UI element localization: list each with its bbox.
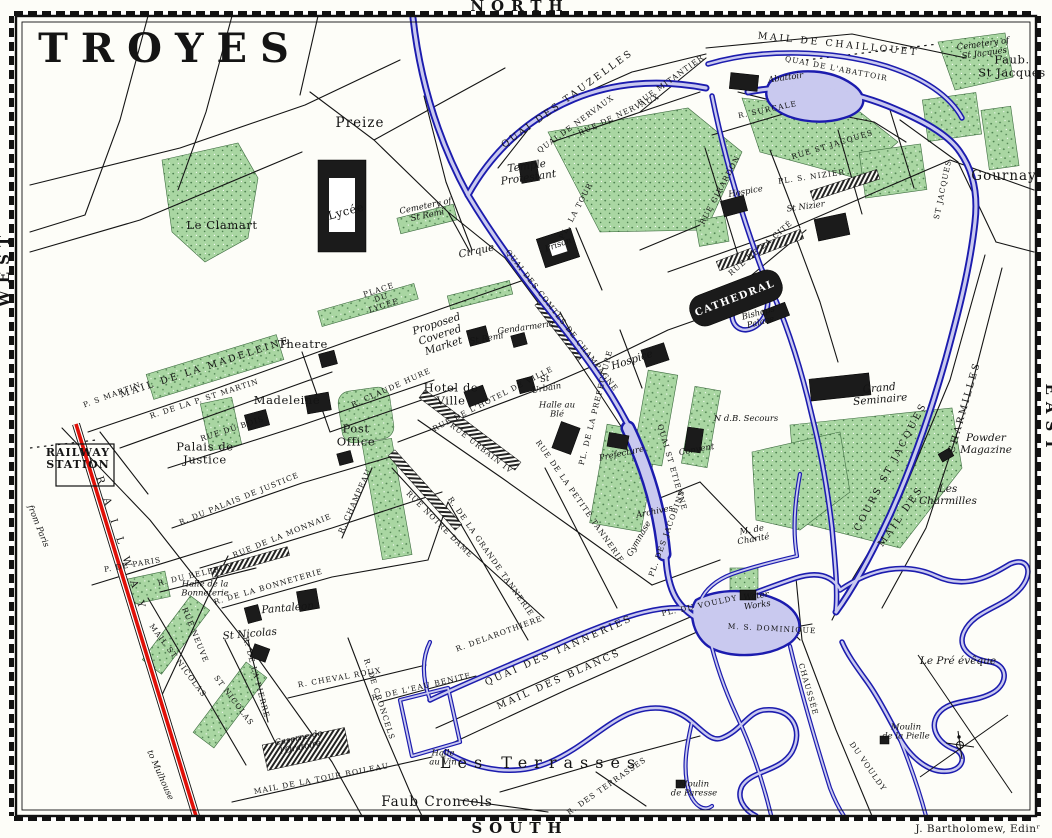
frame-tickband-left (9, 16, 14, 816)
label-compass-north: NORTH (470, 0, 569, 15)
label-madeleine: Madeleine (254, 393, 321, 407)
park-ne-1 (859, 144, 927, 198)
label-compass-south: SOUTH (471, 819, 568, 837)
label-halle-au-vin: Halleau Vin (429, 748, 456, 767)
label-ndb-secours: N d.B. Secours (713, 414, 779, 424)
label-le-clamart: Le Clamart (186, 218, 257, 232)
label-compass-east: EAST (1042, 383, 1052, 456)
abattoir-building (729, 73, 759, 92)
label-compass-west: WEST (0, 229, 13, 308)
label-railway-station: RAILWAYSTATION (46, 446, 110, 471)
label-powder-magazine: PowderMagazine (959, 432, 1012, 456)
troyes-map: TROYES (0, 0, 1052, 838)
park-ne-2 (922, 92, 981, 141)
label-preize: Preize (336, 115, 385, 131)
label-les-terrasses: Les Terrasses (440, 753, 642, 772)
label-attribution: J. Bartholomew, Edinʳ (914, 823, 1040, 835)
label-title: TROYES (38, 25, 302, 72)
label-gournay: Gournay (971, 168, 1036, 184)
label-water-works: WaterWorks (742, 589, 772, 612)
label-post-office: PostOffice (337, 422, 375, 449)
label-palais-de-justice: Palais deJustice (176, 440, 233, 467)
label-le-pre-eveque: Le Pré évêque (919, 655, 996, 667)
label-faub-croncels: Faub Croncels (381, 794, 493, 810)
